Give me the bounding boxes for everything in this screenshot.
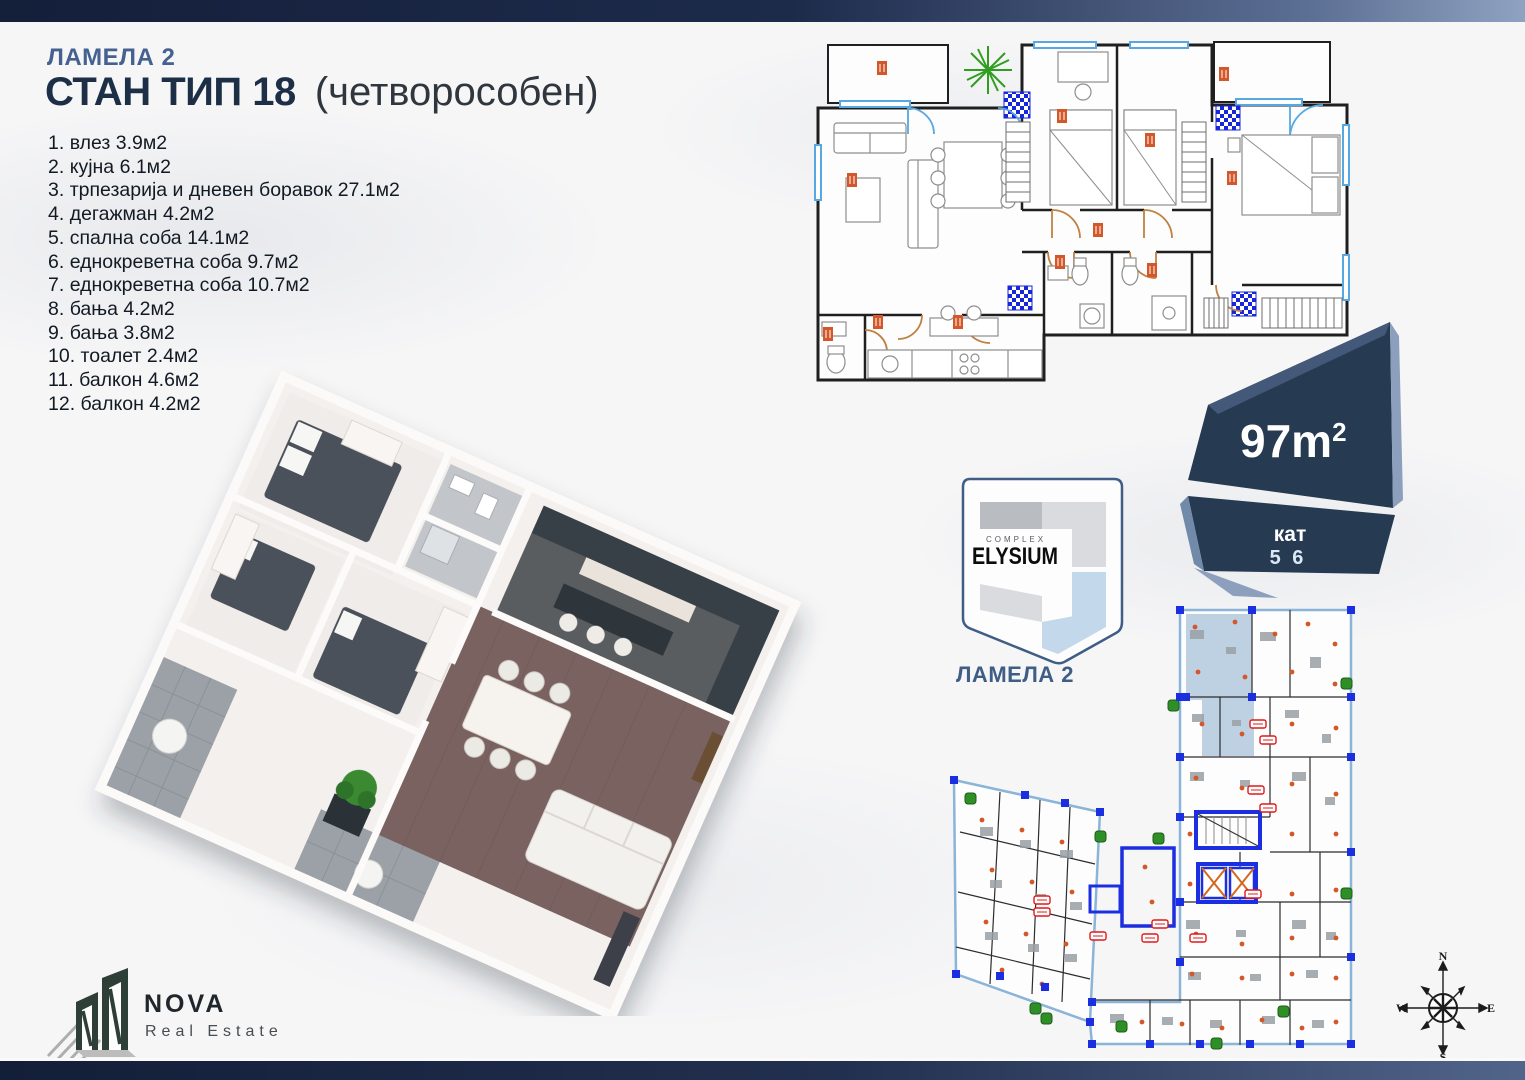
floor-numbers: 5 6: [1270, 547, 1307, 569]
building-floorplan: [940, 602, 1410, 1057]
compass-east: E: [1487, 1001, 1495, 1015]
room-list-item: 9. бања 3.8м2: [48, 322, 400, 346]
nova-name: NOVA: [144, 990, 226, 1018]
apartment-type-title: СТАН ТИП 18: [45, 70, 296, 114]
area-badge: 97m2 кат 5 6: [1178, 310, 1410, 610]
bottom-accent-bar: [0, 1058, 1525, 1080]
room-list-item: 4. дегажман 4.2м2: [48, 203, 400, 227]
buildings-icon: [76, 968, 136, 1057]
nova-subtitle: Real Estate: [145, 1023, 283, 1040]
area-value: 97m2: [1240, 415, 1347, 467]
apartment-3d-group: [101, 377, 796, 1016]
room-list-item: 8. бања 4.2м2: [48, 298, 400, 322]
room-list-item: 2. кујна 6.1м2: [48, 156, 400, 180]
room-list-item: 7. еднокреветна соба 10.7м2: [48, 274, 400, 298]
room-list-item: 1. влез 3.9м2: [48, 132, 400, 156]
floorplan-3d-render: [48, 356, 848, 1016]
compass-west: W: [1396, 1001, 1408, 1015]
elysium-name: ELYSIUM: [972, 543, 1058, 570]
compass-rose-icon: N S W E: [1396, 950, 1496, 1062]
plant-icon: [964, 46, 1012, 94]
room-list-item: 6. еднокреветна соба 9.7м2: [48, 251, 400, 275]
nova-logo: NOVA Real Estate: [46, 958, 296, 1070]
apartment-type-subtitle: (четворособен): [315, 70, 599, 114]
page-title: СТАН ТИП 18 (четворособен): [45, 70, 599, 115]
floor-label: кат: [1274, 523, 1306, 546]
compass-north: N: [1439, 950, 1448, 963]
lamela-heading: ЛАМЕЛА 2: [47, 44, 175, 72]
brochure-page: ЛАМЕЛА 2 СТАН ТИП 18 (четворособен) 1. в…: [0, 0, 1525, 1080]
room-list-item: 5. спална соба 14.1м2: [48, 227, 400, 251]
room-list-item: 3. трпезарија и дневен боравок 27.1м2: [48, 179, 400, 203]
top-accent-bar: [0, 0, 1525, 22]
